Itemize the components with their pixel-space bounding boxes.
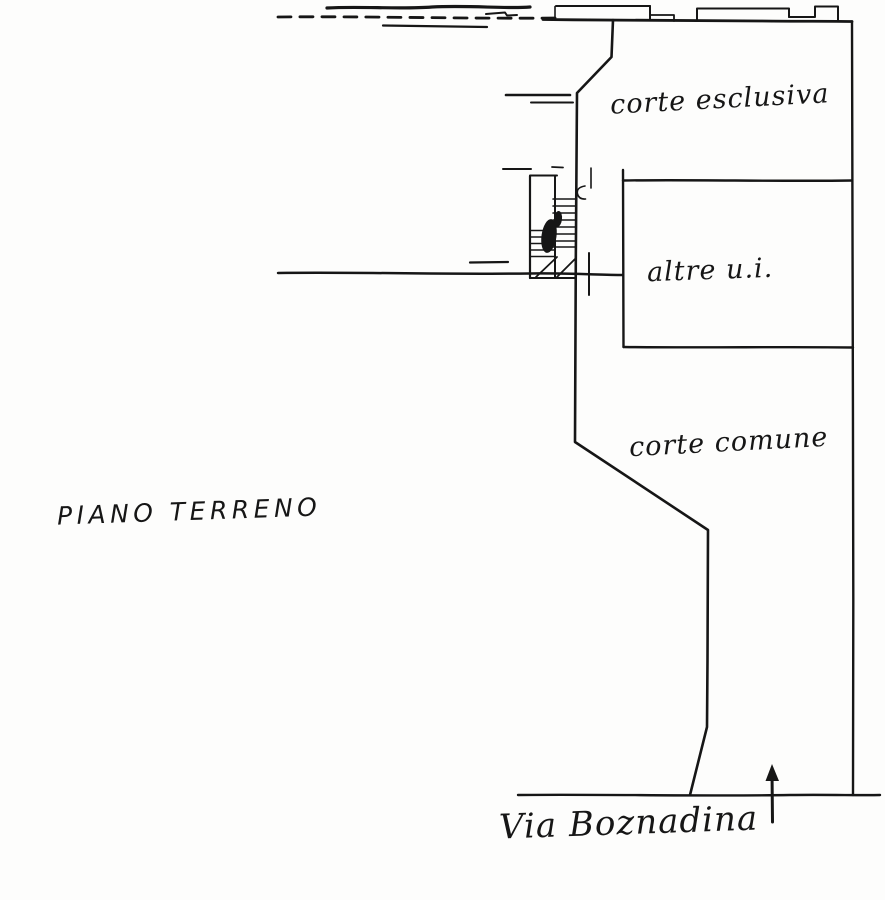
double-wall-lines	[506, 95, 573, 103]
up-arrow-icon	[766, 764, 780, 822]
room-top-wall	[623, 180, 852, 181]
divider-dash-mark	[470, 262, 508, 263]
stairs-symbol	[503, 167, 591, 278]
room-left-wall	[623, 170, 624, 347]
boundary-short-line	[383, 26, 487, 28]
right-boundary-line	[852, 22, 853, 796]
wall-hook-mark	[577, 186, 585, 199]
arrow-head	[766, 764, 780, 781]
boundary-solid-line	[327, 6, 530, 8]
street-edge-line	[518, 795, 880, 796]
boundary-dashed-line	[278, 17, 562, 18]
courtyard-divider	[278, 253, 623, 295]
site-boundary-top	[278, 6, 562, 27]
building-outline	[575, 20, 708, 795]
divider-line	[278, 273, 623, 275]
neighbor-step	[789, 7, 838, 22]
neighbor-bar	[697, 9, 789, 21]
boundary-step-line	[486, 13, 517, 16]
adjacent-buildings-top	[543, 6, 852, 22]
right-boundary-wall	[852, 22, 853, 796]
other-units-label: altre u.i.	[646, 253, 773, 288]
building-wall-line	[575, 20, 708, 795]
room-bottom-wall	[624, 347, 854, 348]
street-line	[518, 795, 880, 796]
stair-landing-tick	[552, 167, 563, 168]
cadastral-floor-plan: corte esclusiva altre u.i. corte comune …	[0, 0, 885, 900]
